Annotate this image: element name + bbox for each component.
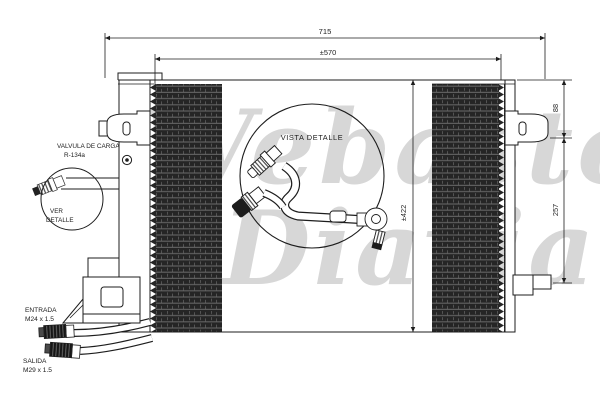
inlet-fitting xyxy=(39,324,75,339)
dim-overall-height: ±422 xyxy=(399,205,408,221)
connector-flange xyxy=(80,314,140,323)
watermark-line2: Diavia xyxy=(219,189,597,309)
detail-view-title: VISTA DETALLE xyxy=(281,133,344,142)
outlet-label-line1: SALIDA xyxy=(23,358,47,365)
charge-valve-label-line1: VALVULA DE CARGA xyxy=(57,143,120,150)
inlet-label-line2: M24 x 1.5 xyxy=(25,316,54,323)
connector-channel xyxy=(88,258,119,277)
dim-overall-width: 715 xyxy=(319,27,332,36)
right-fin-band xyxy=(432,84,499,332)
left-fin-band xyxy=(156,84,222,332)
technical-drawing-page: Webasto Diavia xyxy=(0,0,600,400)
charge-valve-label-line2: R-134a xyxy=(64,152,85,159)
left-fin-serration xyxy=(150,84,156,332)
condenser-diagram: Webasto Diavia xyxy=(0,0,600,400)
charge-valve-port xyxy=(122,155,131,164)
right-mount-bracket-top xyxy=(505,111,548,145)
dim-core-width: ±570 xyxy=(320,48,336,57)
dim-bracket-top-offset: 88 xyxy=(551,104,560,112)
inlet-label-line1: ENTRADA xyxy=(25,307,57,314)
connector-block-boss xyxy=(101,287,123,307)
outlet-label-line2: M29 x 1.5 xyxy=(23,367,52,374)
see-detail-label-line1: VER xyxy=(50,208,63,215)
see-detail-label-line2: DETALLE xyxy=(46,217,74,224)
dim-bracket-span: 257 xyxy=(551,204,560,216)
right-fin-serration xyxy=(499,84,505,332)
